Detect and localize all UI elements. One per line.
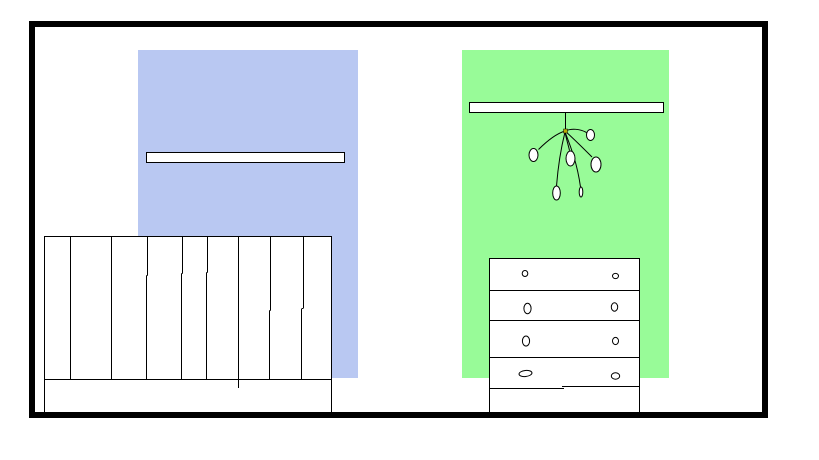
drawer-knob xyxy=(522,336,529,346)
drawer-knob xyxy=(524,303,531,313)
mobile-branch xyxy=(557,132,566,186)
dresser-body xyxy=(490,259,640,413)
paint-canvas: { "scene": { "description": "Hand-drawn … xyxy=(0,0,819,460)
line-art-layer xyxy=(0,0,819,460)
mobile-branch xyxy=(565,129,587,132)
crib-base xyxy=(45,380,332,413)
mobile-pod xyxy=(591,157,601,172)
drawer-knob xyxy=(611,303,617,311)
mobile-pod xyxy=(553,186,561,200)
hanging-mobile xyxy=(529,113,601,200)
drawer-knob xyxy=(611,373,619,379)
mobile-pod xyxy=(529,149,538,162)
crib-body xyxy=(45,237,332,380)
mobile-pod xyxy=(566,151,575,166)
dresser xyxy=(490,259,640,413)
drawer-knob xyxy=(522,271,528,277)
drawer-knob xyxy=(613,273,619,278)
mobile-pod xyxy=(587,130,595,141)
mobile-branch xyxy=(539,131,566,150)
crib xyxy=(45,237,332,413)
drawer-knob xyxy=(613,337,619,344)
mobile-knot xyxy=(564,129,568,133)
mobile-pod xyxy=(579,187,583,197)
